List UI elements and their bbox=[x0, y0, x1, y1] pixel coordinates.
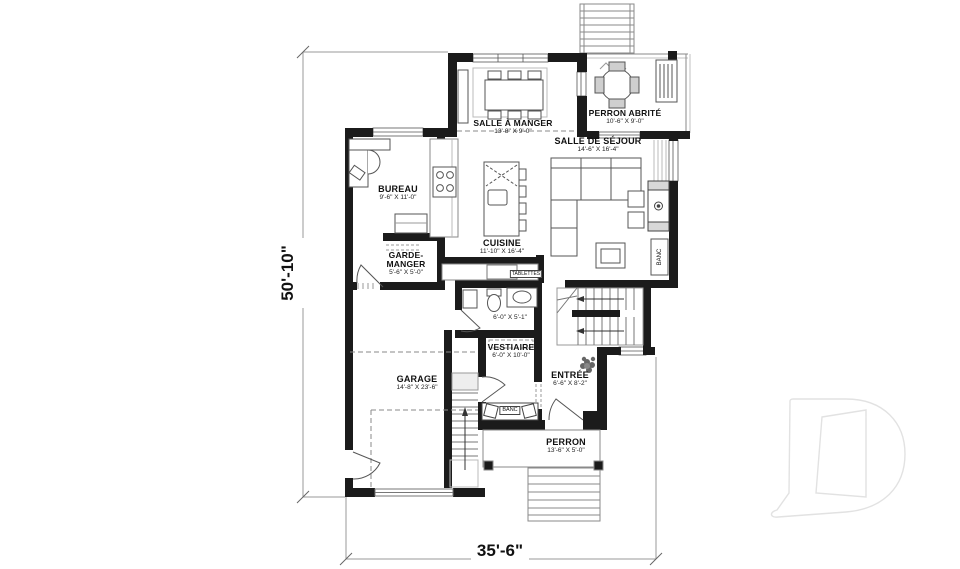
room-dims: 6'-6" X 8'-2" bbox=[551, 380, 589, 388]
pantry-door bbox=[357, 265, 383, 287]
porch-post bbox=[484, 461, 493, 470]
garage-side-door bbox=[353, 452, 380, 479]
room-dims: 13'-8" X 9'-0" bbox=[473, 128, 552, 136]
room-name: ENTRÉE bbox=[551, 370, 589, 380]
powder-room-door bbox=[461, 310, 480, 332]
porch-post bbox=[668, 51, 677, 60]
label-bureau: BUREAU 9'-6" X 11'-0" bbox=[378, 184, 418, 202]
basement-stairs bbox=[450, 373, 478, 487]
room-name: GARAGE bbox=[396, 374, 437, 384]
dining-furniture bbox=[458, 68, 547, 123]
room-name: PERRON bbox=[546, 437, 586, 447]
fireplace bbox=[648, 181, 669, 231]
label-vestiaire: VESTIAIRE 6'-0" X 10'-0" bbox=[488, 343, 535, 360]
room-dims: 14'-8" X 23'-6" bbox=[396, 384, 437, 392]
label-garage: GARAGE 14'-8" X 23'-6" bbox=[396, 374, 437, 392]
d-letter-watermark-icon bbox=[771, 399, 905, 517]
floor-plan-drawing bbox=[0, 0, 960, 569]
porch-table-chairs bbox=[595, 62, 639, 108]
label-salle-eau-dims: 6'-0" X 5'-1" bbox=[493, 314, 527, 322]
overall-width-dimension: 35'-6" bbox=[477, 541, 523, 561]
room-dims: 13'-6" X 5'-0" bbox=[546, 447, 586, 455]
powder-room-fixtures bbox=[463, 288, 537, 312]
deck-stairs bbox=[580, 4, 634, 53]
room-name: CUISINE bbox=[480, 238, 524, 248]
garage-door bbox=[375, 489, 453, 496]
sejour-window-sill bbox=[654, 140, 666, 181]
front-door bbox=[549, 399, 583, 420]
room-dims: 14'-6" X 16'-4" bbox=[554, 146, 641, 154]
room-dims: 9'-6" X 11'-0" bbox=[378, 194, 418, 202]
label-salle-a-manger: SALLE À MANGER 13'-8" X 9'-0" bbox=[473, 119, 552, 136]
label-tablettes: TABLETTES bbox=[510, 270, 542, 278]
vestiaire-door bbox=[482, 377, 505, 402]
floor-plan-page: SALLE À MANGER 13'-8" X 9'-0" PERRON ABR… bbox=[0, 0, 960, 569]
room-dims: 6'-0" X 10'-0" bbox=[488, 352, 535, 360]
label-cuisine: CUISINE 11'-10" X 16'-4" bbox=[480, 238, 524, 256]
label-banc-sejour: BANC bbox=[657, 249, 663, 266]
room-name: SALLE DE SÉJOUR bbox=[554, 136, 641, 146]
room-dims: 5'-6" X 5'-0" bbox=[387, 269, 426, 277]
room-name: PERRON ABRITÉ bbox=[589, 109, 662, 118]
porch-post bbox=[594, 461, 603, 470]
room-name: VESTIAIRE bbox=[488, 343, 535, 352]
bbq-grill bbox=[656, 60, 677, 102]
label-salle-de-sejour: SALLE DE SÉJOUR 14'-6" X 16'-4" bbox=[554, 136, 641, 154]
room-dims: 6'-0" X 5'-1" bbox=[493, 314, 527, 322]
sejour-furniture bbox=[551, 158, 644, 268]
room-name: BUREAU bbox=[378, 184, 418, 194]
label-entree: ENTRÉE 6'-6" X 8'-2" bbox=[551, 370, 589, 388]
room-name: MANGER bbox=[387, 260, 426, 269]
label-garde-manger: GARDE- MANGER 5'-6" X 5'-0" bbox=[387, 251, 426, 277]
room-dims: 10'-6" X 9'-0" bbox=[589, 118, 662, 126]
overall-height-dimension: 50'-10" bbox=[278, 245, 298, 301]
label-banc-entree: BANC bbox=[499, 406, 520, 415]
room-dims: 11'-10" X 16'-4" bbox=[480, 248, 524, 256]
room-name: SALLE À MANGER bbox=[473, 119, 552, 128]
label-perron-abrite: PERRON ABRITÉ 10'-6" X 9'-0" bbox=[589, 109, 662, 126]
label-perron: PERRON 13'-6" X 5'-0" bbox=[546, 437, 586, 455]
